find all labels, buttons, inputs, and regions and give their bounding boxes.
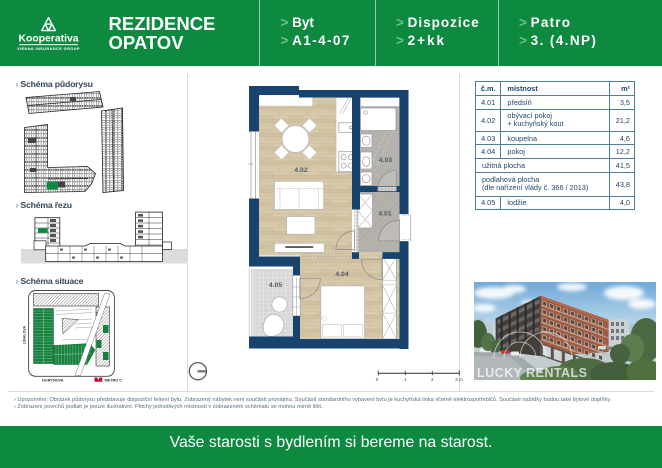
svg-text:HORYNOVA: HORYNOVA bbox=[42, 379, 64, 383]
svg-text:3 m: 3 m bbox=[455, 377, 463, 382]
svg-text:4.03: 4.03 bbox=[379, 157, 392, 164]
svg-text:1: 1 bbox=[404, 377, 407, 382]
svg-text:2: 2 bbox=[431, 377, 434, 382]
svg-text:VIENNA INSURANCE GROUP: VIENNA INSURANCE GROUP bbox=[17, 46, 80, 51]
svg-text:LÍBALOVA: LÍBALOVA bbox=[22, 325, 27, 344]
svg-text:4.05: 4.05 bbox=[269, 282, 282, 289]
svg-text:4.01: 4.01 bbox=[378, 211, 391, 218]
svg-text:4.02: 4.02 bbox=[294, 167, 307, 174]
svg-text:0: 0 bbox=[376, 377, 379, 382]
svg-text:METRO C: METRO C bbox=[105, 379, 123, 383]
svg-text:4.04: 4.04 bbox=[335, 271, 348, 278]
svg-text:LUCKY RENTALS: LUCKY RENTALS bbox=[477, 366, 587, 380]
svg-text:Kooperativa: Kooperativa bbox=[18, 34, 78, 45]
